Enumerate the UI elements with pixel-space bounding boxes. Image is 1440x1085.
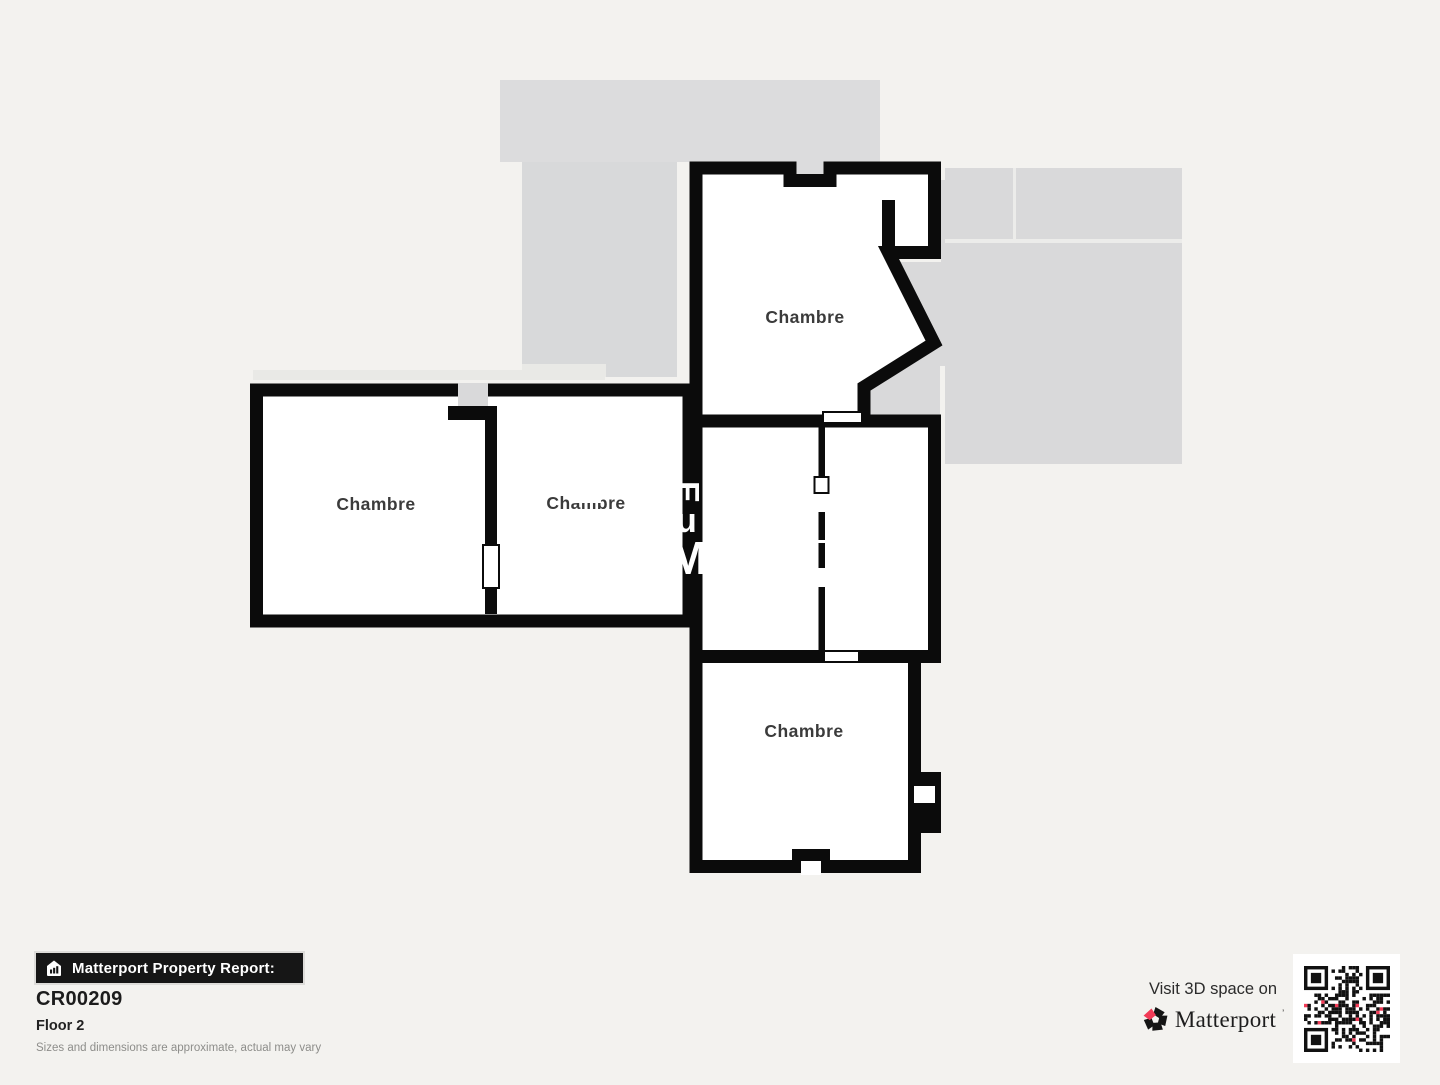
qr-module xyxy=(1352,972,1355,975)
qr-module xyxy=(1348,1007,1351,1010)
qr-module xyxy=(1362,1021,1365,1024)
qr-module xyxy=(1338,1038,1341,1041)
qr-module xyxy=(1359,1031,1362,1034)
qr-module xyxy=(1376,1007,1379,1010)
qr-module xyxy=(1338,986,1341,989)
qr-module xyxy=(1352,1003,1355,1006)
qr-module xyxy=(1331,1003,1334,1006)
brand-wordmark: Matterport xyxy=(1175,1007,1276,1033)
qr-module xyxy=(1359,972,1362,975)
adjacent-area xyxy=(500,80,880,162)
room-outline-bottom-bedroom xyxy=(696,657,915,867)
qr-module xyxy=(1304,1017,1307,1020)
qr-module xyxy=(1338,1021,1341,1024)
qr-module xyxy=(1341,1027,1344,1030)
qr-module xyxy=(1331,1017,1334,1020)
house-chart-icon xyxy=(45,959,63,977)
qr-module xyxy=(1386,1034,1389,1037)
visit-text: Visit 3D space on xyxy=(1128,980,1298,999)
qr-module xyxy=(1338,976,1341,979)
qr-module xyxy=(1352,990,1355,993)
qr-module xyxy=(1317,1014,1320,1017)
qr-module xyxy=(1386,1000,1389,1003)
qr-module xyxy=(1334,1017,1337,1020)
adjacent-area-seam xyxy=(945,239,1182,243)
qr-module xyxy=(1379,1000,1382,1003)
qr-module xyxy=(1328,1014,1331,1017)
qr-module xyxy=(1376,1010,1379,1013)
wall-segment xyxy=(819,543,826,568)
qr-module xyxy=(1352,966,1355,969)
qr-module xyxy=(1345,1010,1348,1013)
qr-module xyxy=(1355,1000,1358,1003)
qr-module xyxy=(1352,1038,1355,1041)
qr-module xyxy=(1310,972,1320,982)
qr-module xyxy=(1314,1021,1317,1024)
qr-module xyxy=(1334,1007,1337,1010)
qr-module xyxy=(1331,969,1334,972)
wall-notch xyxy=(914,786,935,803)
qr-module xyxy=(1314,993,1317,996)
qr-module xyxy=(1379,996,1382,999)
qr-module xyxy=(1376,1024,1379,1027)
qr-module xyxy=(1348,979,1351,982)
qr-module xyxy=(1352,993,1355,996)
qr-module xyxy=(1386,1017,1389,1020)
qr-module xyxy=(1372,1000,1375,1003)
qr-module xyxy=(1334,1038,1337,1041)
room-label-left: Chambre xyxy=(336,494,415,514)
qr-module xyxy=(1369,1010,1372,1013)
qr-module xyxy=(1369,1021,1372,1024)
qr-module xyxy=(1376,1017,1379,1020)
qr-module xyxy=(1372,1010,1375,1013)
qr-module xyxy=(1369,1014,1372,1017)
qr-module xyxy=(1362,996,1365,999)
qr-module xyxy=(1338,1045,1341,1048)
qr-code-icon xyxy=(1304,966,1390,1052)
wall-segment xyxy=(819,512,826,540)
qr-module xyxy=(1386,1024,1389,1027)
qr-module xyxy=(1321,996,1324,999)
qr-module xyxy=(1338,1007,1341,1010)
qr-module xyxy=(1345,1007,1348,1010)
qr-module xyxy=(1372,1031,1375,1034)
qr-module xyxy=(1341,990,1344,993)
qr-module xyxy=(1334,996,1337,999)
qr-module xyxy=(1376,1000,1379,1003)
qr-module xyxy=(1372,1003,1375,1006)
qr-module xyxy=(1372,1034,1375,1037)
qr-module xyxy=(1341,993,1344,996)
qr-module xyxy=(1355,1003,1358,1006)
qr-module xyxy=(1334,1024,1337,1027)
qr-module xyxy=(1341,966,1344,969)
qr-module xyxy=(1338,1003,1341,1006)
qr-module xyxy=(1321,1003,1324,1006)
qr-module xyxy=(1369,1017,1372,1020)
floor-plan-page: Chambre Chambre Chambre Chambre E u M Ma… xyxy=(0,0,1440,1080)
qr-module xyxy=(1379,1021,1382,1024)
room-label-bottom: Chambre xyxy=(764,721,843,741)
qr-module xyxy=(1355,1017,1358,1020)
qr-module xyxy=(1338,993,1341,996)
qr-module xyxy=(1345,1034,1348,1037)
qr-module xyxy=(1362,1038,1365,1041)
qr-module xyxy=(1317,996,1320,999)
qr-module xyxy=(1383,1017,1386,1020)
qr-module xyxy=(1355,976,1358,979)
qr-module xyxy=(1345,996,1348,999)
label-overlay-patch xyxy=(571,486,601,503)
qr-module xyxy=(1331,1027,1334,1030)
qr-module xyxy=(1352,1010,1355,1013)
qr-module xyxy=(1379,1048,1382,1051)
door-marker xyxy=(824,651,859,662)
qr-module xyxy=(1341,1003,1344,1006)
qr-module xyxy=(1317,993,1320,996)
qr-module xyxy=(1379,1045,1382,1048)
qr-module xyxy=(1369,1041,1372,1044)
watermark-fragments: E u M xyxy=(669,481,707,584)
qr-module xyxy=(1307,1007,1310,1010)
qr-module xyxy=(1338,969,1341,972)
watermark-fragment: M xyxy=(669,532,707,584)
qr-module xyxy=(1334,976,1337,979)
qr-module xyxy=(1369,993,1372,996)
qr-module xyxy=(1386,993,1389,996)
qr-module xyxy=(1345,990,1348,993)
qr-module xyxy=(1379,1041,1382,1044)
qr-module xyxy=(1355,1014,1358,1017)
qr-module xyxy=(1355,1010,1358,1013)
qr-module xyxy=(1365,1041,1368,1044)
qr-module xyxy=(1328,1003,1331,1006)
doorway-gap xyxy=(801,861,821,875)
qr-module xyxy=(1379,1034,1382,1037)
qr-module xyxy=(1352,1007,1355,1010)
watermark-fragment: E xyxy=(669,481,706,503)
qr-module xyxy=(1372,993,1375,996)
qr-module xyxy=(1379,1024,1382,1027)
qr-module xyxy=(1352,1034,1355,1037)
qr-module xyxy=(1383,1007,1386,1010)
qr-module xyxy=(1355,966,1358,969)
qr-module xyxy=(1372,972,1382,982)
qr-module xyxy=(1352,979,1355,982)
qr-module xyxy=(1324,1007,1327,1010)
qr-module xyxy=(1359,1048,1362,1051)
adjacent-area xyxy=(253,370,605,380)
qr-module xyxy=(1383,993,1386,996)
qr-module xyxy=(1383,1034,1386,1037)
qr-module xyxy=(1324,1000,1327,1003)
qr-module xyxy=(1365,1027,1368,1030)
qr-module xyxy=(1328,996,1331,999)
qr-module xyxy=(1355,969,1358,972)
qr-module xyxy=(1348,1031,1351,1034)
qr-module xyxy=(1345,993,1348,996)
qr-module xyxy=(1369,1003,1372,1006)
qr-module xyxy=(1341,969,1344,972)
qr-module xyxy=(1338,1014,1341,1017)
qr-card xyxy=(1293,954,1400,1063)
adjacent-area xyxy=(945,168,1182,464)
qr-module xyxy=(1304,1014,1307,1017)
qr-module xyxy=(1345,983,1348,986)
door-marker xyxy=(823,412,862,423)
qr-module xyxy=(1314,1014,1317,1017)
qr-module xyxy=(1334,1027,1337,1030)
qr-module xyxy=(1348,966,1351,969)
qr-module xyxy=(1338,990,1341,993)
wall-segment xyxy=(819,587,826,650)
room-label-top: Chambre xyxy=(765,307,844,327)
qr-module xyxy=(1352,1041,1355,1044)
qr-module xyxy=(1331,1010,1334,1013)
qr-module xyxy=(1324,1021,1327,1024)
qr-module xyxy=(1348,1027,1351,1030)
qr-module xyxy=(1331,996,1334,999)
qr-module xyxy=(1341,1000,1344,1003)
qr-module xyxy=(1355,1031,1358,1034)
qr-module xyxy=(1379,993,1382,996)
qr-module xyxy=(1365,1007,1368,1010)
qr-module xyxy=(1359,1007,1362,1010)
qr-module xyxy=(1359,1017,1362,1020)
qr-module xyxy=(1345,1038,1348,1041)
qr-module xyxy=(1334,993,1337,996)
qr-module xyxy=(1355,979,1358,982)
qr-module xyxy=(1345,1003,1348,1006)
qr-module xyxy=(1338,983,1341,986)
qr-module xyxy=(1321,1021,1324,1024)
wall-segment xyxy=(819,427,826,477)
matterport-pinwheel-icon xyxy=(1142,1006,1169,1033)
divider-wall-middle-section xyxy=(819,427,826,650)
qr-module xyxy=(1345,972,1348,975)
qr-module xyxy=(1376,996,1379,999)
qr-module xyxy=(1334,1003,1337,1006)
qr-module xyxy=(1331,1007,1334,1010)
qr-module xyxy=(1376,1027,1379,1030)
qr-module xyxy=(1345,986,1348,989)
qr-module xyxy=(1345,976,1348,979)
qr-module xyxy=(1352,976,1355,979)
qr-module xyxy=(1317,1021,1320,1024)
property-id: CR00209 xyxy=(36,988,123,1011)
door-marker xyxy=(483,545,499,588)
qr-module xyxy=(1348,1017,1351,1020)
door-marker xyxy=(815,477,829,493)
qr-module xyxy=(1345,979,1348,982)
qr-module xyxy=(1372,1024,1375,1027)
qr-module xyxy=(1359,1038,1362,1041)
qr-module xyxy=(1369,996,1372,999)
qr-module xyxy=(1383,1014,1386,1017)
qr-module xyxy=(1365,1034,1368,1037)
qr-module xyxy=(1334,1010,1337,1013)
qr-module xyxy=(1355,990,1358,993)
floor-label: Floor 2 xyxy=(36,1018,84,1034)
qr-module xyxy=(1331,1045,1334,1048)
qr-module xyxy=(1331,986,1334,989)
visit-3d-cta: Visit 3D space on Matterport ’ xyxy=(1128,980,1298,1033)
qr-module xyxy=(1341,979,1344,982)
report-banner-label: Matterport Property Report: xyxy=(72,960,275,977)
qr-module xyxy=(1386,1021,1389,1024)
qr-module xyxy=(1379,1014,1382,1017)
qr-module xyxy=(1359,986,1362,989)
qr-module xyxy=(1345,1021,1348,1024)
qr-module xyxy=(1338,1000,1341,1003)
qr-module xyxy=(1379,1038,1382,1041)
qr-module xyxy=(1328,1021,1331,1024)
qr-module xyxy=(1359,1021,1362,1024)
wall-segment xyxy=(485,413,497,546)
qr-module xyxy=(1328,1010,1331,1013)
qr-module xyxy=(1383,1010,1386,1013)
qr-module xyxy=(1372,1048,1375,1051)
qr-module xyxy=(1355,1045,1358,1048)
matterport-logo: Matterport ’ xyxy=(1128,1006,1298,1033)
qr-module xyxy=(1362,1024,1365,1027)
report-banner: Matterport Property Report: xyxy=(36,953,303,983)
qr-module xyxy=(1307,1021,1310,1024)
qr-module xyxy=(1341,1031,1344,1034)
qr-module xyxy=(1307,1003,1310,1006)
floor-plan: Chambre Chambre Chambre Chambre E u M xyxy=(0,0,1440,1080)
disclaimer: Sizes and dimensions are approximate, ac… xyxy=(36,1042,321,1054)
wall-segment xyxy=(485,588,497,614)
qr-module xyxy=(1331,1041,1334,1044)
qr-module xyxy=(1341,1017,1344,1020)
qr-module xyxy=(1383,1021,1386,1024)
qr-module xyxy=(1334,1021,1337,1024)
room-outline-middle-section xyxy=(696,421,935,657)
qr-module xyxy=(1348,976,1351,979)
qr-module xyxy=(1365,1048,1368,1051)
qr-module xyxy=(1376,1041,1379,1044)
qr-module xyxy=(1314,1007,1317,1010)
qr-module xyxy=(1365,1003,1368,1006)
qr-module xyxy=(1372,1038,1375,1041)
qr-module xyxy=(1372,1027,1375,1030)
qr-module xyxy=(1310,1034,1320,1044)
qr-module xyxy=(1348,1021,1351,1024)
qr-module xyxy=(1386,1014,1389,1017)
qr-module xyxy=(1352,1024,1355,1027)
adjacent-area xyxy=(522,162,677,377)
qr-module xyxy=(1348,1045,1351,1048)
qr-module xyxy=(1324,1014,1327,1017)
qr-module xyxy=(1304,1003,1307,1006)
qr-module xyxy=(1338,1010,1341,1013)
qr-module xyxy=(1321,1010,1324,1013)
adjacent-area-seam xyxy=(1013,168,1016,239)
qr-module xyxy=(1317,1010,1320,1013)
qr-module xyxy=(1307,1014,1310,1017)
qr-module xyxy=(1352,986,1355,989)
trademark-mark: ’ xyxy=(1282,1008,1284,1018)
qr-module xyxy=(1386,1007,1389,1010)
qr-module xyxy=(1379,1007,1382,1010)
qr-module xyxy=(1348,1010,1351,1013)
qr-module xyxy=(1334,1031,1337,1034)
qr-module xyxy=(1376,993,1379,996)
qr-module xyxy=(1341,1021,1344,1024)
qr-module xyxy=(1324,993,1327,996)
qr-module xyxy=(1355,983,1358,986)
qr-module xyxy=(1352,1027,1355,1030)
qr-module xyxy=(1345,1017,1348,1020)
qr-module xyxy=(1321,1000,1324,1003)
qr-module xyxy=(1348,1038,1351,1041)
qr-module xyxy=(1348,1014,1351,1017)
doorway-step xyxy=(792,849,830,861)
qr-module xyxy=(1352,1017,1355,1020)
qr-module xyxy=(1352,1000,1355,1003)
qr-module xyxy=(1328,1017,1331,1020)
qr-module xyxy=(1372,1041,1375,1044)
qr-module xyxy=(1376,1014,1379,1017)
qr-module xyxy=(1341,1034,1344,1037)
qr-module xyxy=(1355,1027,1358,1030)
qr-module xyxy=(1314,1000,1317,1003)
qr-module xyxy=(1362,1031,1365,1034)
qr-module xyxy=(1362,1014,1365,1017)
